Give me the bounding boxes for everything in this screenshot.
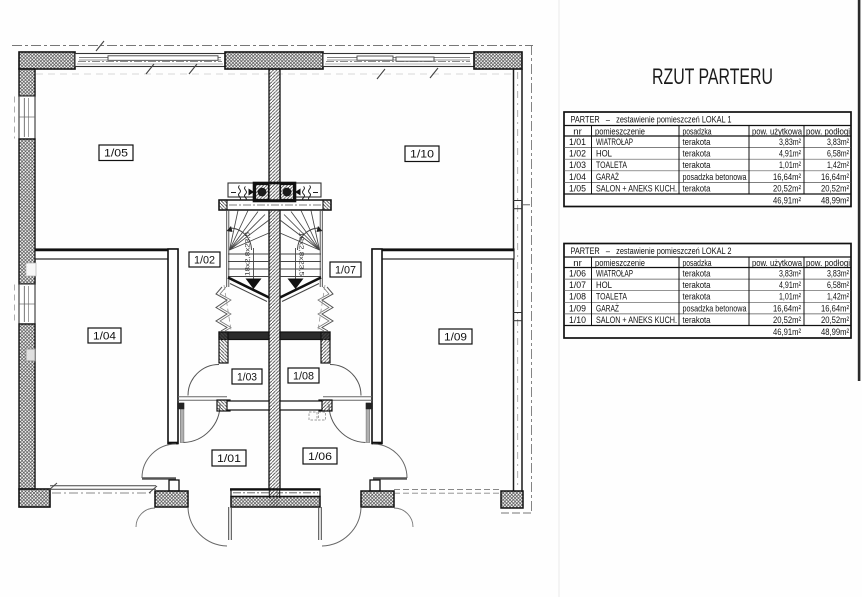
svg-text:pow. użytkowa: pow. użytkowa <box>752 258 803 269</box>
svg-text:16,64m²: 16,64m² <box>821 303 850 314</box>
svg-text:48,99m²: 48,99m² <box>821 327 850 338</box>
svg-text:3,83m²: 3,83m² <box>827 137 850 148</box>
svg-text:pow. podłogi: pow. podłogi <box>806 258 850 269</box>
svg-text:1/03: 1/03 <box>569 160 586 171</box>
svg-text:PARTER – zestawienie pomie: PARTER – zestawienie pomieszczeń LOKAL 2 <box>571 246 732 257</box>
svg-text:20,52m²: 20,52m² <box>773 315 802 326</box>
svg-text:1/06: 1/06 <box>308 451 332 463</box>
svg-text:1/06: 1/06 <box>569 269 586 280</box>
svg-text:TOALETA: TOALETA <box>596 160 627 171</box>
svg-text:1/02: 1/02 <box>194 254 215 266</box>
svg-text:1/04: 1/04 <box>93 330 116 342</box>
svg-text:pow. użytkowa: pow. użytkowa <box>752 127 803 138</box>
svg-text:1/09: 1/09 <box>444 331 467 343</box>
svg-text:18x2,8x23,5: 18x2,8x23,5 <box>245 231 252 276</box>
svg-text:posadzka: posadzka <box>683 258 712 269</box>
svg-text:1/08: 1/08 <box>293 370 314 382</box>
svg-text:1,01m²: 1,01m² <box>779 292 802 303</box>
svg-text:4,91m²: 4,91m² <box>779 280 802 291</box>
svg-text:3,83m²: 3,83m² <box>827 269 850 280</box>
svg-text:4,91m²: 4,91m² <box>779 149 802 160</box>
svg-text:1/03: 1/03 <box>237 371 257 383</box>
svg-text:posadzka betonowa: posadzka betonowa <box>683 172 747 183</box>
svg-text:3,83m²: 3,83m² <box>779 137 802 148</box>
svg-text:terakota: terakota <box>683 315 712 326</box>
svg-text:1/04: 1/04 <box>569 172 587 183</box>
svg-text:terakota: terakota <box>683 137 712 148</box>
svg-text:1/07: 1/07 <box>569 280 586 291</box>
svg-text:3,83m²: 3,83m² <box>779 269 802 280</box>
svg-text:6,58m²: 6,58m² <box>827 149 850 160</box>
svg-text:pomieszczenie: pomieszczenie <box>595 127 645 138</box>
svg-text:1/05: 1/05 <box>104 148 128 160</box>
svg-text:6,58m²: 6,58m² <box>827 280 850 291</box>
svg-text:SALON + ANEKS KUCH.: SALON + ANEKS KUCH. <box>596 315 677 326</box>
svg-text:WIATROŁAP: WIATROŁAP <box>596 137 633 148</box>
svg-text:1,01m²: 1,01m² <box>779 160 802 171</box>
svg-text:48,99m²: 48,99m² <box>821 195 850 206</box>
svg-text:RZUT PARTERU: RZUT PARTERU <box>652 64 773 89</box>
svg-text:terakota: terakota <box>683 269 712 280</box>
svg-text:1/10: 1/10 <box>569 315 586 326</box>
svg-text:posadzka: posadzka <box>683 127 712 138</box>
svg-text:46,91m²: 46,91m² <box>773 195 802 206</box>
svg-text:1/09: 1/09 <box>569 303 586 314</box>
svg-text:terakota: terakota <box>683 183 712 194</box>
svg-text:GARAŻ: GARAŻ <box>596 172 619 183</box>
svg-text:HOL: HOL <box>596 149 613 160</box>
svg-text:16,64m²: 16,64m² <box>821 172 850 183</box>
svg-text:1/07: 1/07 <box>335 264 356 276</box>
svg-text:1/10: 1/10 <box>410 149 434 161</box>
svg-text:1,42m²: 1,42m² <box>827 292 850 303</box>
svg-text:nr: nr <box>573 258 582 269</box>
svg-text:terakota: terakota <box>683 149 712 160</box>
svg-text:SALON + ANEKS KUCH.: SALON + ANEKS KUCH. <box>596 183 677 194</box>
svg-text:pomieszczenie: pomieszczenie <box>595 258 645 269</box>
svg-text:1,42m²: 1,42m² <box>827 160 850 171</box>
svg-text:1/01: 1/01 <box>217 453 241 465</box>
svg-text:20,52m²: 20,52m² <box>821 183 850 194</box>
svg-text:1/05: 1/05 <box>569 183 586 194</box>
svg-text:terakota: terakota <box>683 160 712 171</box>
svg-text:PARTER – zestawienie pomie: PARTER – zestawienie pomieszczeń LOKAL 1 <box>571 114 732 125</box>
svg-text:WIATROŁAP: WIATROŁAP <box>596 269 633 280</box>
svg-text:18x2,8x23,5: 18x2,8x23,5 <box>298 232 305 277</box>
svg-text:46,91m²: 46,91m² <box>773 327 802 338</box>
svg-text:1/02: 1/02 <box>569 149 586 160</box>
svg-text:terakota: terakota <box>683 292 712 303</box>
svg-text:terakota: terakota <box>683 280 712 291</box>
svg-text:posadzka betonowa: posadzka betonowa <box>683 303 747 314</box>
svg-text:1/08: 1/08 <box>569 292 586 303</box>
svg-text:nr: nr <box>573 127 582 138</box>
svg-text:TOALETA: TOALETA <box>596 292 627 303</box>
svg-text:20,52m²: 20,52m² <box>821 315 850 326</box>
svg-text:16,64m²: 16,64m² <box>773 303 802 314</box>
svg-text:HOL: HOL <box>596 280 613 291</box>
svg-text:20,52m²: 20,52m² <box>773 183 802 194</box>
svg-text:pow. podłogi: pow. podłogi <box>806 127 850 138</box>
svg-text:16,64m²: 16,64m² <box>773 172 802 183</box>
svg-text:GARAŻ: GARAŻ <box>596 303 619 314</box>
svg-text:1/01: 1/01 <box>569 137 586 148</box>
